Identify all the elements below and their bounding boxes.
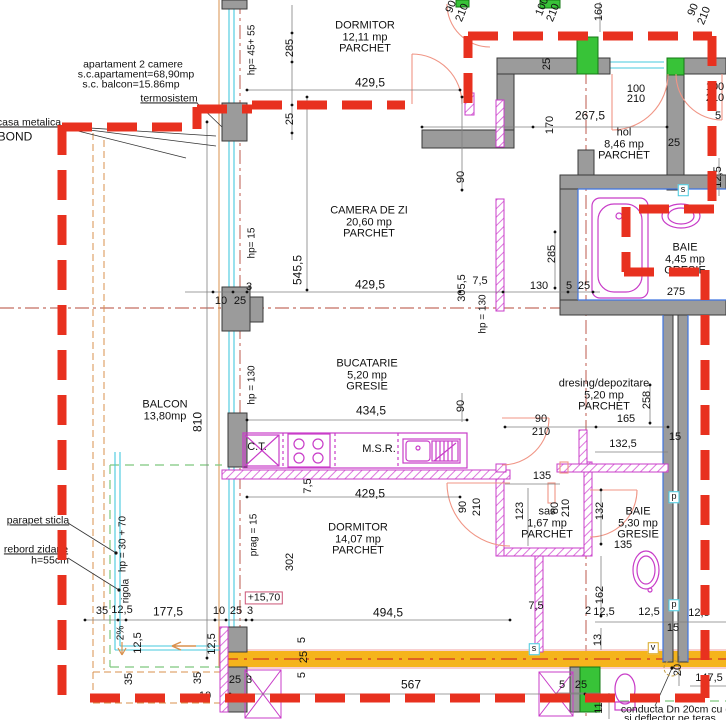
- dim-label: 10: [215, 296, 227, 308]
- dim-label: hp= 15: [248, 228, 259, 259]
- dim-label: 25: [229, 675, 241, 687]
- dim-label: 25: [285, 113, 297, 125]
- dim-label: 162: [595, 586, 607, 604]
- dim-label: 25: [542, 58, 554, 70]
- dim-label: 434,5: [356, 405, 386, 418]
- dim-label: 35: [96, 606, 108, 618]
- dim-label: 810: [192, 412, 205, 432]
- dim-label: hp = 130: [248, 365, 259, 404]
- room-baie-south: BAIE 5,30 mp GRESIE: [617, 507, 659, 542]
- dim-label: 10: [213, 606, 225, 618]
- dim-label: 210: [532, 427, 550, 439]
- dim-label: 5: [297, 637, 309, 643]
- dim-label: M.S.R.: [362, 444, 396, 456]
- dim-label: 165: [617, 414, 635, 426]
- dim-label: 285: [547, 245, 559, 263]
- dim-label: 258: [642, 391, 654, 409]
- dim-label: 3: [247, 606, 253, 618]
- dim-label: 123: [515, 502, 527, 520]
- dim-label: 170: [545, 116, 557, 134]
- dim-label: 2: [585, 606, 591, 618]
- note-termosistem: termosistem: [140, 93, 197, 104]
- dim-label: 285: [285, 39, 297, 57]
- dim-label: 20: [673, 664, 685, 676]
- dim-label: 35: [193, 672, 205, 684]
- dim-label: 210: [472, 498, 484, 516]
- dim-label: 10: [199, 691, 211, 703]
- dim-label: 267,5: [575, 110, 605, 123]
- shaft-v: v: [648, 642, 659, 654]
- dim-label: 12,5: [688, 608, 709, 620]
- dim-label: 305,5: [457, 274, 469, 302]
- dim-label: 25: [299, 651, 311, 663]
- dim-label: 177,5: [153, 606, 183, 619]
- note-parapet-sticla: parapet sticla: [7, 515, 69, 526]
- dim-label: 132: [595, 502, 607, 520]
- dim-label: 147,5: [695, 673, 723, 685]
- dim-label: 110: [594, 696, 606, 714]
- dim-label: 12,5: [638, 607, 659, 619]
- shaft-s-bottom: s: [529, 643, 540, 655]
- note-rigola-hp: hp = 30 + 70: [119, 516, 130, 572]
- room-camera-de-zi: CAMERA DE ZI 20,60 mp PARCHET: [330, 206, 408, 241]
- room-hol: hol 8,46 mp PARCHET: [598, 128, 650, 163]
- dim-label: 275: [667, 287, 685, 299]
- dim-label: 12,5: [207, 633, 219, 654]
- dim-label: C.T.: [247, 442, 267, 454]
- level-marker: +15,70: [245, 591, 283, 604]
- dim-label: 35: [124, 673, 136, 685]
- dim-label: 15: [667, 623, 679, 635]
- dim-label: 494,5: [373, 607, 403, 620]
- label-overlay: apartament 2 camere s.c.apartament=68,90…: [0, 0, 726, 720]
- dim-label: 90: [458, 501, 470, 513]
- note-bond: BOND: [0, 131, 32, 144]
- room-baie-north: BAIE 4,45 mp GRESIE: [664, 243, 706, 278]
- shaft-p-lower: p: [668, 599, 679, 611]
- shaft-s-top: s: [678, 184, 689, 196]
- floorplan-canvas: apartament 2 camere s.c.apartament=68,90…: [0, 0, 726, 720]
- dim-label: 12,5: [133, 632, 145, 653]
- dim-label: 429,5: [355, 77, 385, 90]
- note-slope: 2%: [117, 626, 128, 640]
- dim-label: 545,5: [292, 255, 305, 285]
- dim-label: 25: [575, 680, 587, 692]
- dim-label: 15: [669, 432, 681, 444]
- note-rigola: rigola: [122, 579, 133, 603]
- note-casa-metalica: casa metalica: [0, 117, 61, 128]
- dim-label: 5: [715, 111, 721, 123]
- dim-label: 429,5: [355, 488, 385, 501]
- dim-label: 210: [561, 499, 573, 517]
- dim-label: 429,5: [355, 279, 385, 292]
- shaft-p-upper: p: [668, 491, 679, 503]
- room-dresing: dresing/depozitare 5,20 mp PARCHET: [559, 379, 650, 414]
- room-dormitor-south: DORMITOR 14,07 mp PARCHET: [328, 523, 388, 558]
- dim-label: 160: [594, 3, 606, 21]
- dim-label: 567: [401, 679, 421, 692]
- dim-label: 210: [706, 93, 724, 105]
- dim-label: 12,5: [111, 605, 132, 617]
- dim-label: 302: [285, 553, 297, 571]
- dim-label: prag = 15: [250, 514, 261, 557]
- dim-label: 135: [614, 540, 632, 552]
- dim-label: hp = 130: [479, 294, 490, 333]
- dim-label: 130: [530, 281, 548, 293]
- dim-label: 90: [456, 171, 468, 183]
- dim-label: 12,5: [713, 166, 725, 187]
- dim-label: 7,5: [303, 478, 315, 493]
- dim-label: hp= 45+ 55: [248, 25, 259, 76]
- dim-label: 25: [578, 281, 590, 293]
- apartment-area-balcony: s.c. balcon=15.86mp: [82, 79, 179, 90]
- dim-label: 210: [627, 94, 645, 106]
- dim-label: 12,5: [593, 607, 614, 619]
- dim-label: 3: [246, 282, 252, 294]
- note-rebord-h: h=55cm: [31, 555, 69, 566]
- dim-label: 7,5: [528, 601, 543, 613]
- dim-label: 25: [234, 296, 246, 308]
- dim-label: 5: [559, 680, 565, 692]
- dim-label: 25: [668, 138, 680, 150]
- dim-label: 25: [230, 606, 242, 618]
- dim-label: 7,5: [472, 276, 487, 288]
- dim-label: 5: [297, 672, 309, 678]
- dim-label: 13: [593, 634, 605, 646]
- dim-label: 5: [566, 281, 572, 293]
- dim-label: 90: [535, 414, 547, 426]
- room-bucatarie: BUCATARIE 5,20 mp GRESIE: [336, 359, 397, 394]
- dim-label: 132,5: [609, 439, 637, 451]
- dim-label: 90: [456, 400, 468, 412]
- dim-label: 3: [246, 675, 252, 687]
- note-conducta-2: si deflector pe teras: [624, 713, 716, 720]
- room-dormitor-north: DORMITOR 12,11 mp PARCHET: [335, 21, 395, 56]
- room-balcon: BALCON 13,80mp: [142, 399, 187, 422]
- dim-label: 135: [533, 471, 551, 483]
